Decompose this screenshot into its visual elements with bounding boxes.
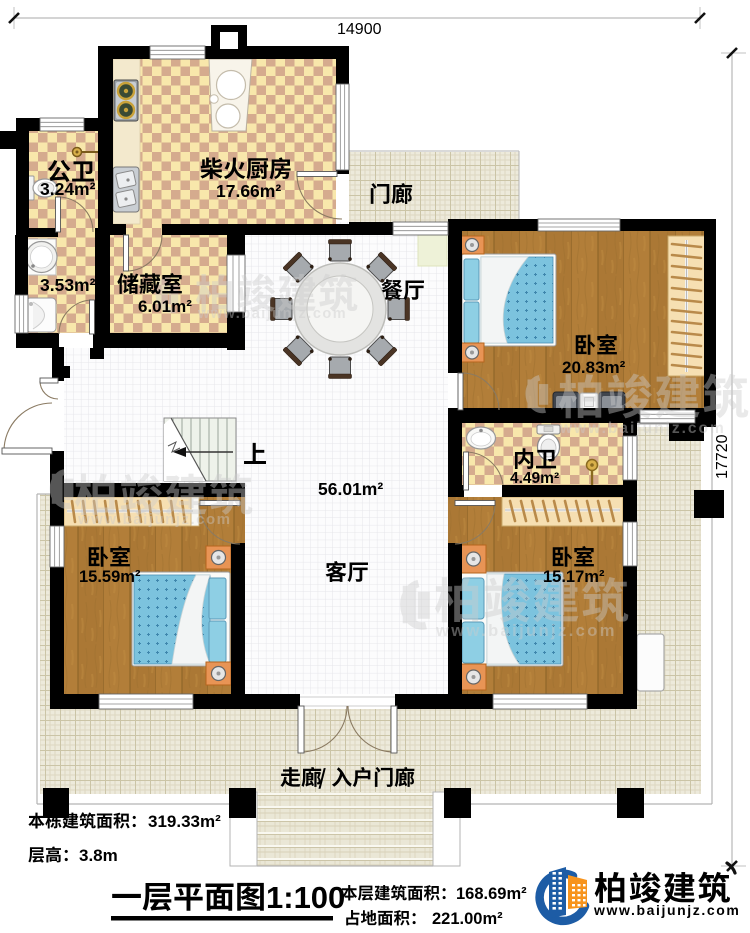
svg-text:20.83m²: 20.83m² — [562, 358, 626, 377]
svg-text:221.00m²: 221.00m² — [432, 910, 503, 928]
svg-text:168.69m²: 168.69m² — [456, 885, 527, 903]
svg-text:www.baijunjz.com: www.baijunjz.com — [593, 902, 740, 918]
svg-text:www.baijunjz.com: www.baijunjz.com — [435, 622, 617, 640]
svg-text:15.17m²: 15.17m² — [543, 568, 605, 586]
svg-text:17.66m²: 17.66m² — [216, 181, 281, 201]
svg-text:3.24m²: 3.24m² — [40, 179, 96, 199]
svg-text:3.8m: 3.8m — [79, 846, 118, 865]
svg-text:www.baijunjz.com: www.baijunjz.com — [197, 306, 347, 322]
svg-text:17720: 17720 — [714, 434, 731, 479]
svg-text:6.01m²: 6.01m² — [138, 297, 192, 316]
svg-text:www.baijunjz.com: www.baijunjz.com — [559, 420, 726, 437]
svg-text:56.01m²: 56.01m² — [318, 479, 383, 499]
svg-text:15.59m²: 15.59m² — [79, 568, 141, 586]
svg-text:319.33m²: 319.33m² — [148, 812, 221, 831]
svg-text:4.49m²: 4.49m² — [510, 470, 559, 487]
svg-text:3.53m²: 3.53m² — [40, 275, 96, 295]
svg-text:www.baijunjz.com: www.baijunjz.com — [77, 511, 231, 528]
svg-text:14900: 14900 — [337, 21, 382, 38]
svg-text:1:100: 1:100 — [266, 880, 345, 915]
